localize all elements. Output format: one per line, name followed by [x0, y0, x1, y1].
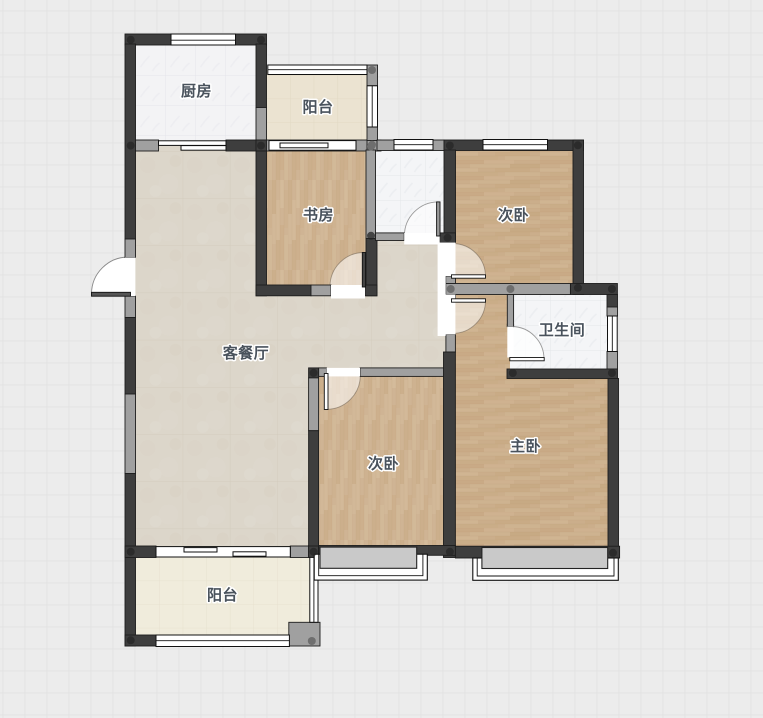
svg-text:次卧: 次卧: [368, 455, 399, 473]
svg-text:客餐厅: 客餐厅: [222, 344, 270, 362]
svg-text:主卧: 主卧: [510, 437, 541, 455]
svg-text:阳台: 阳台: [302, 98, 333, 116]
svg-text:阳台: 阳台: [207, 586, 238, 604]
svg-text:厨房: 厨房: [181, 82, 212, 100]
svg-text:书房: 书房: [303, 206, 334, 224]
svg-text:卫生间: 卫生间: [539, 321, 586, 339]
svg-text:次卧: 次卧: [498, 206, 529, 224]
